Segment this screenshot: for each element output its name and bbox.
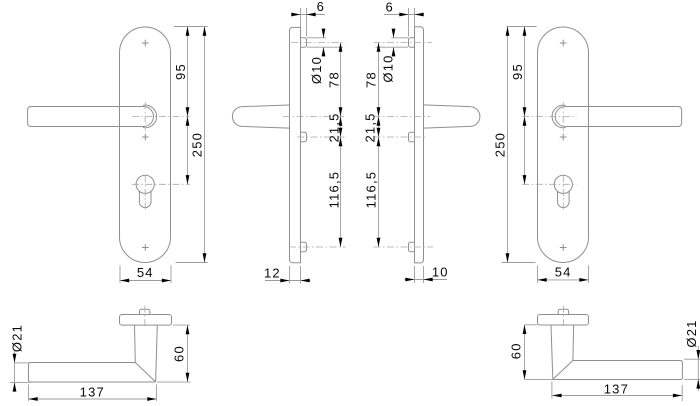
svg-text:54: 54: [555, 264, 572, 279]
svg-text:54: 54: [137, 265, 154, 280]
svg-text:116,5: 116,5: [327, 171, 342, 209]
svg-text:137: 137: [80, 384, 105, 399]
svg-text:Ø10: Ø10: [381, 54, 396, 82]
svg-text:116,5: 116,5: [364, 171, 379, 209]
svg-text:10: 10: [432, 264, 449, 279]
svg-text:78: 78: [364, 71, 379, 88]
svg-text:6: 6: [317, 0, 325, 14]
svg-text:95: 95: [510, 63, 525, 80]
svg-text:78: 78: [327, 71, 342, 88]
svg-text:137: 137: [604, 382, 629, 397]
svg-text:95: 95: [173, 63, 188, 80]
svg-text:60: 60: [171, 345, 186, 362]
svg-text:Ø21: Ø21: [10, 324, 25, 352]
svg-text:250: 250: [190, 132, 205, 157]
svg-text:Ø21: Ø21: [684, 319, 699, 347]
svg-text:250: 250: [493, 132, 508, 157]
svg-text:21,5: 21,5: [327, 112, 342, 142]
svg-text:21,5: 21,5: [363, 112, 378, 142]
svg-text:Ø10: Ø10: [309, 56, 324, 84]
svg-text:6: 6: [385, 0, 393, 14]
svg-text:60: 60: [508, 342, 523, 359]
svg-text:12: 12: [264, 265, 281, 280]
